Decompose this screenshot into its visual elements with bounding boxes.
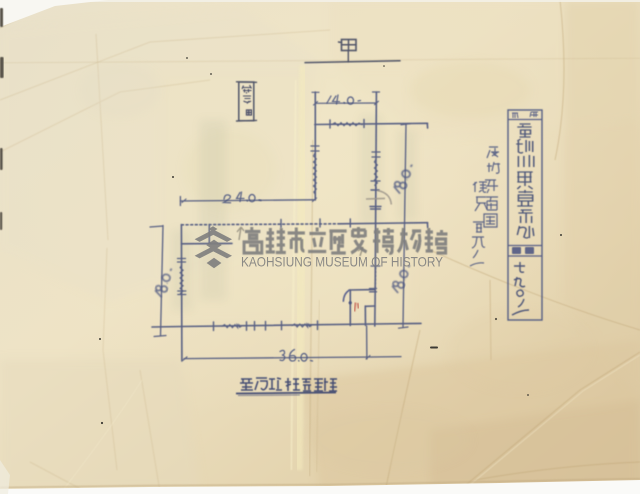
svg-text:KAOHSIUNG MUSEUM OF HISTORY: KAOHSIUNG MUSEUM OF HISTORY xyxy=(241,253,443,269)
